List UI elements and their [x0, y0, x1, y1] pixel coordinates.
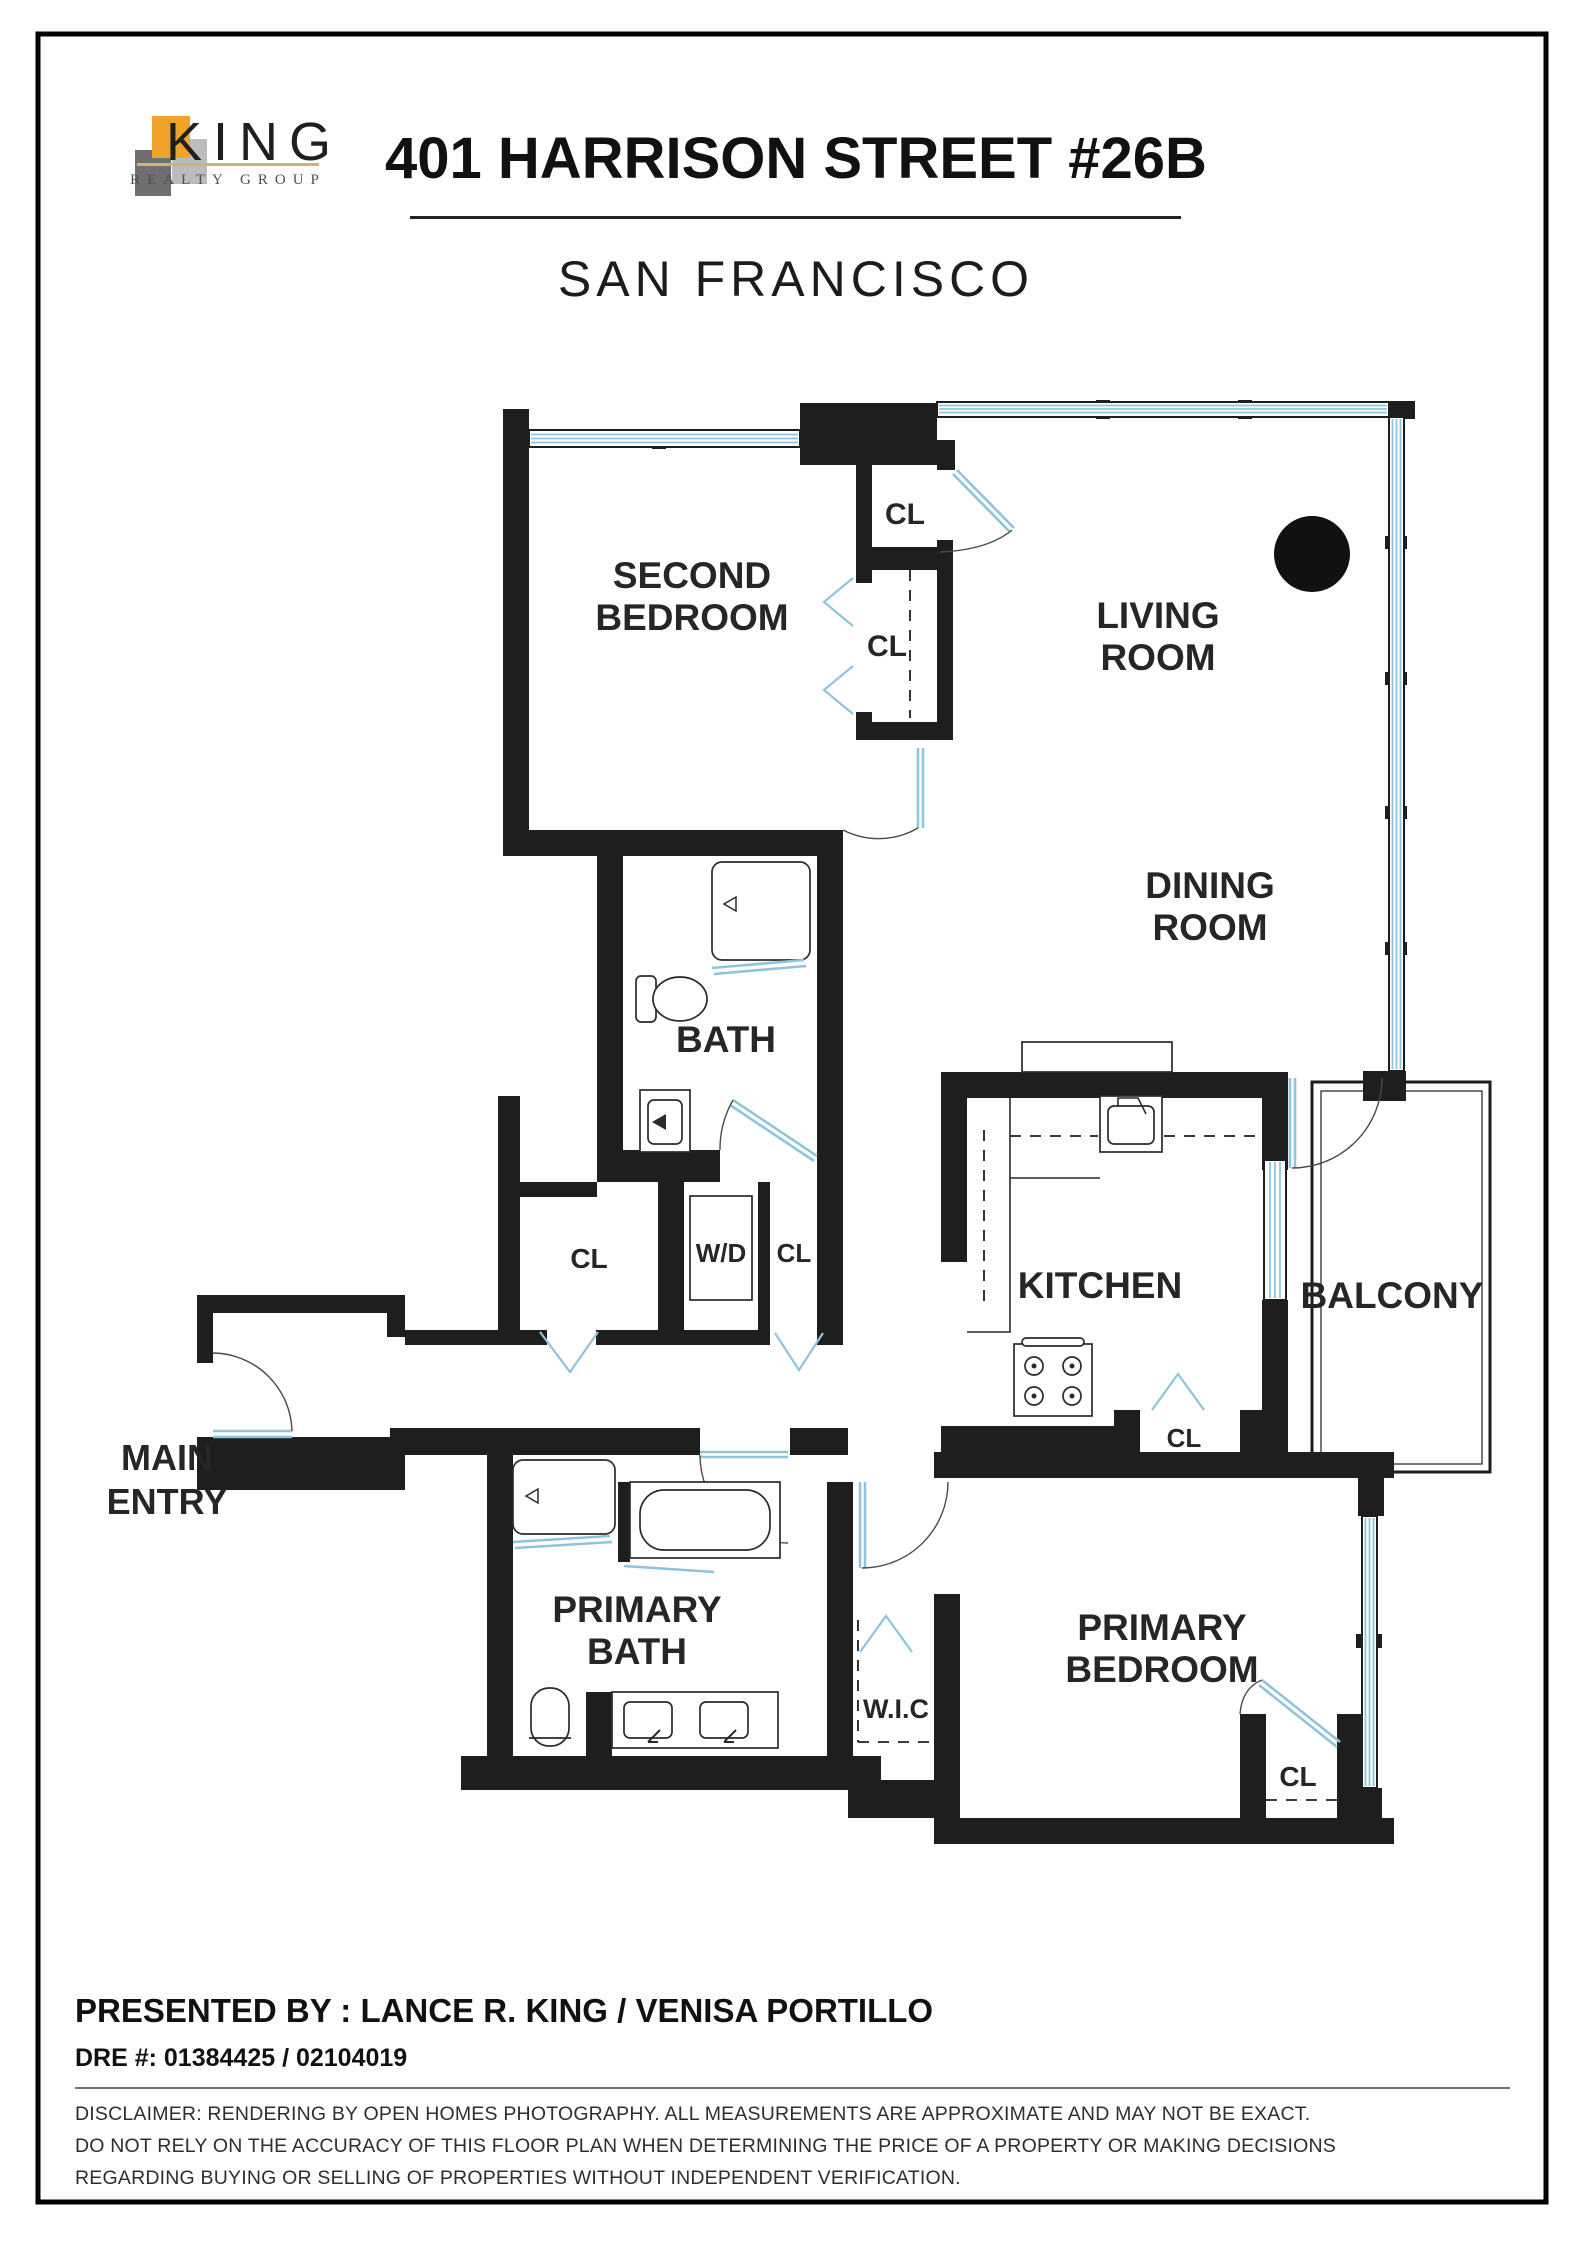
- primary-bedroom-door: [860, 1482, 948, 1568]
- column: [1274, 516, 1350, 592]
- label-washer-dryer: W/D: [696, 1238, 747, 1268]
- label-second-bedroom-1: SECOND: [613, 555, 771, 596]
- label-primary-bath-2: BATH: [587, 1631, 687, 1672]
- disclaimer-line-1: DISCLAIMER: RENDERING BY OPEN HOMES PHOT…: [75, 2103, 1310, 2125]
- bath-shower: [712, 862, 810, 974]
- kitchen-stove: [1014, 1338, 1092, 1416]
- bath-toilet: [636, 976, 707, 1022]
- main-entry-door: [213, 1353, 292, 1437]
- primary-tub: [624, 1482, 780, 1572]
- label-primary-bedroom-2: BEDROOM: [1065, 1649, 1258, 1690]
- label-balcony: BALCONY: [1301, 1275, 1484, 1316]
- logo-gold-rule: [137, 163, 319, 166]
- primary-shower: [513, 1460, 615, 1548]
- floorplan-page: KING REALTY GROUP 401 HARRISON STREET #2…: [0, 0, 1584, 2240]
- label-kitchen: KITCHEN: [1018, 1265, 1182, 1306]
- label-closet-hall: CL: [570, 1243, 607, 1274]
- label-closet-second: CL: [867, 630, 907, 663]
- label-main-entry-1: MAIN: [121, 1437, 213, 1478]
- logo: KING REALTY GROUP: [130, 112, 342, 196]
- window-primary-bedroom: [1362, 1516, 1377, 1788]
- label-living-room-1: LIVING: [1096, 595, 1219, 636]
- label-dining-room-2: ROOM: [1152, 907, 1267, 948]
- page-title: 401 HARRISON STREET #26B: [385, 126, 1207, 191]
- label-closet-kitchen: CL: [1167, 1423, 1202, 1453]
- label-second-bedroom-2: BEDROOM: [595, 597, 788, 638]
- kitchen-sink: [1100, 1096, 1162, 1152]
- label-dining-room-1: DINING: [1145, 865, 1275, 906]
- label-bath: BATH: [676, 1019, 776, 1060]
- label-main-entry-2: ENTRY: [107, 1481, 228, 1522]
- bath-door: [720, 1100, 817, 1161]
- label-closet-hall-right: CL: [777, 1238, 812, 1268]
- bath-sink: [640, 1090, 690, 1152]
- label-wic: W.I.C: [863, 1694, 929, 1724]
- page-subtitle: SAN FRANCISCO: [558, 251, 1034, 307]
- presented-by: PRESENTED BY : LANCE R. KING / VENISA PO…: [75, 1992, 933, 2029]
- primary-vanity: [612, 1692, 778, 1748]
- disclaimer-line-2: DO NOT RELY ON THE ACCURACY OF THIS FLOO…: [75, 2135, 1336, 2157]
- window-second-bedroom: [529, 430, 800, 447]
- page-border: [38, 34, 1546, 2202]
- closet-top-door: [940, 470, 1014, 552]
- label-closet-primary: CL: [1279, 1761, 1316, 1792]
- second-bedroom-door: [843, 748, 923, 839]
- label-primary-bath-1: PRIMARY: [552, 1589, 722, 1630]
- label-closet-top: CL: [885, 498, 925, 531]
- primary-toilet: [529, 1688, 571, 1746]
- window-living-top: [937, 402, 1389, 417]
- window-kitchen-balcony-slider: [1264, 1160, 1286, 1300]
- label-primary-bedroom-1: PRIMARY: [1077, 1607, 1247, 1648]
- logo-subtitle: REALTY GROUP: [130, 172, 326, 188]
- disclaimer-line-3: REGARDING BUYING OR SELLING OF PROPERTIE…: [75, 2167, 961, 2189]
- window-living-right: [1389, 417, 1404, 1071]
- label-living-room-2: ROOM: [1100, 637, 1215, 678]
- title-underline: [410, 216, 1181, 219]
- dre-number: DRE #: 01384425 / 02104019: [75, 2044, 407, 2072]
